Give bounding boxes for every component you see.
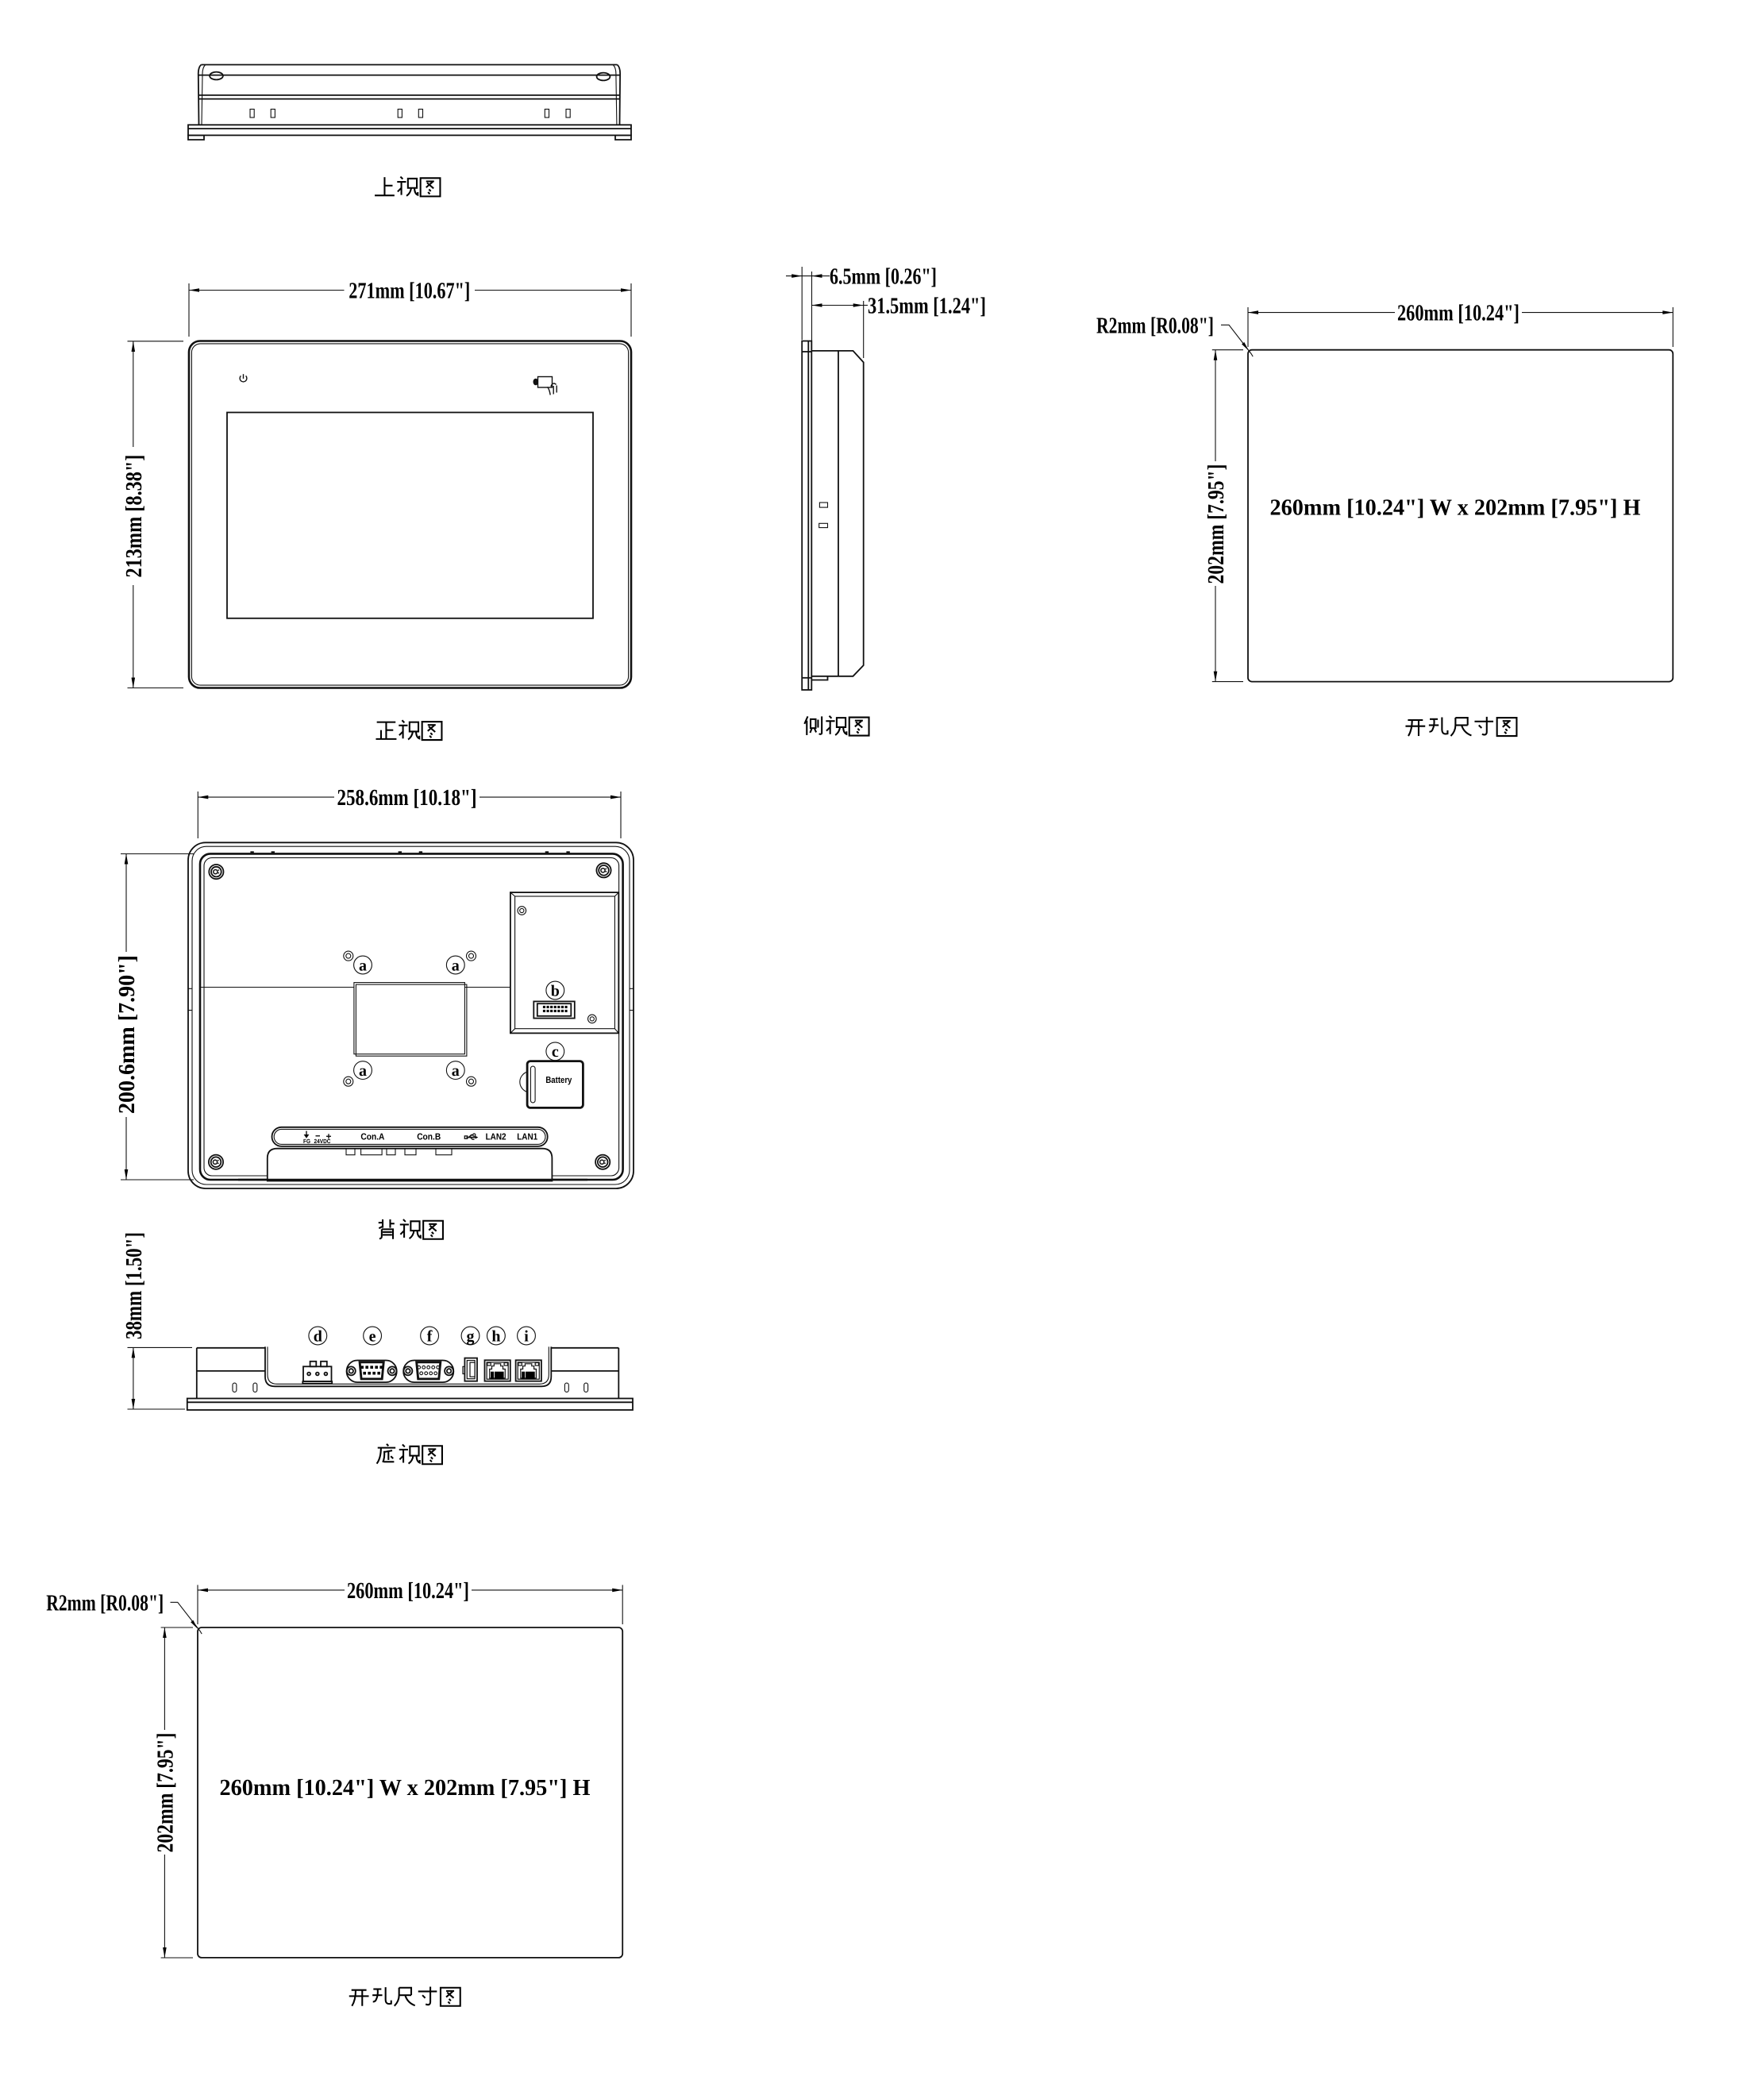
svg-text:213mm [8.38"]: 213mm [8.38"] — [121, 455, 147, 578]
svg-text:b: b — [551, 982, 560, 1000]
svg-text:Con.A: Con.A — [360, 1133, 384, 1142]
svg-text:i: i — [524, 1327, 529, 1345]
svg-text:c: c — [552, 1043, 559, 1061]
svg-text:e: e — [369, 1327, 376, 1345]
svg-text:g: g — [467, 1327, 475, 1345]
svg-text:202mm [7.95"]: 202mm [7.95"] — [152, 1733, 178, 1853]
svg-text:6.5mm [0.26"]: 6.5mm [0.26"] — [830, 264, 937, 290]
svg-text:a: a — [359, 1062, 367, 1080]
svg-text:260mm [10.24"]: 260mm [10.24"] — [347, 1578, 469, 1604]
svg-text:a: a — [359, 957, 367, 974]
svg-text:d: d — [314, 1327, 322, 1345]
svg-text:258.6mm [10.18"]: 258.6mm [10.18"] — [337, 785, 477, 811]
svg-text:LAN2: LAN2 — [486, 1133, 506, 1142]
svg-text:R2mm [R0.08"]: R2mm [R0.08"] — [1096, 313, 1214, 338]
svg-text:24VDC: 24VDC — [314, 1138, 331, 1145]
svg-text:f: f — [427, 1327, 433, 1345]
svg-text:271mm [10.67"]: 271mm [10.67"] — [349, 279, 470, 304]
svg-text:Con.B: Con.B — [417, 1133, 441, 1142]
svg-text:31.5mm [1.24"]: 31.5mm [1.24"] — [868, 294, 986, 319]
svg-text:a: a — [452, 1062, 460, 1080]
svg-text:200.6mm [7.90"]: 200.6mm [7.90"] — [114, 955, 140, 1114]
svg-text:260mm [10.24"] W x 202mm [7.95: 260mm [10.24"] W x 202mm [7.95"] H — [220, 1775, 591, 1801]
svg-text:202mm [7.95"]: 202mm [7.95"] — [1204, 464, 1229, 584]
svg-text:a: a — [452, 957, 460, 974]
svg-text:260mm [10.24"]: 260mm [10.24"] — [1397, 301, 1519, 326]
svg-text:Battery: Battery — [545, 1076, 572, 1085]
svg-text:38mm [1.50"]: 38mm [1.50"] — [121, 1232, 147, 1339]
svg-text:260mm [10.24"] W x 202mm [7.95: 260mm [10.24"] W x 202mm [7.95"] H — [1270, 495, 1641, 521]
svg-text:FG: FG — [303, 1138, 310, 1145]
svg-text:LAN1: LAN1 — [517, 1133, 538, 1142]
svg-text:R2mm [R0.08"]: R2mm [R0.08"] — [46, 1590, 164, 1616]
svg-text:h: h — [491, 1327, 500, 1345]
